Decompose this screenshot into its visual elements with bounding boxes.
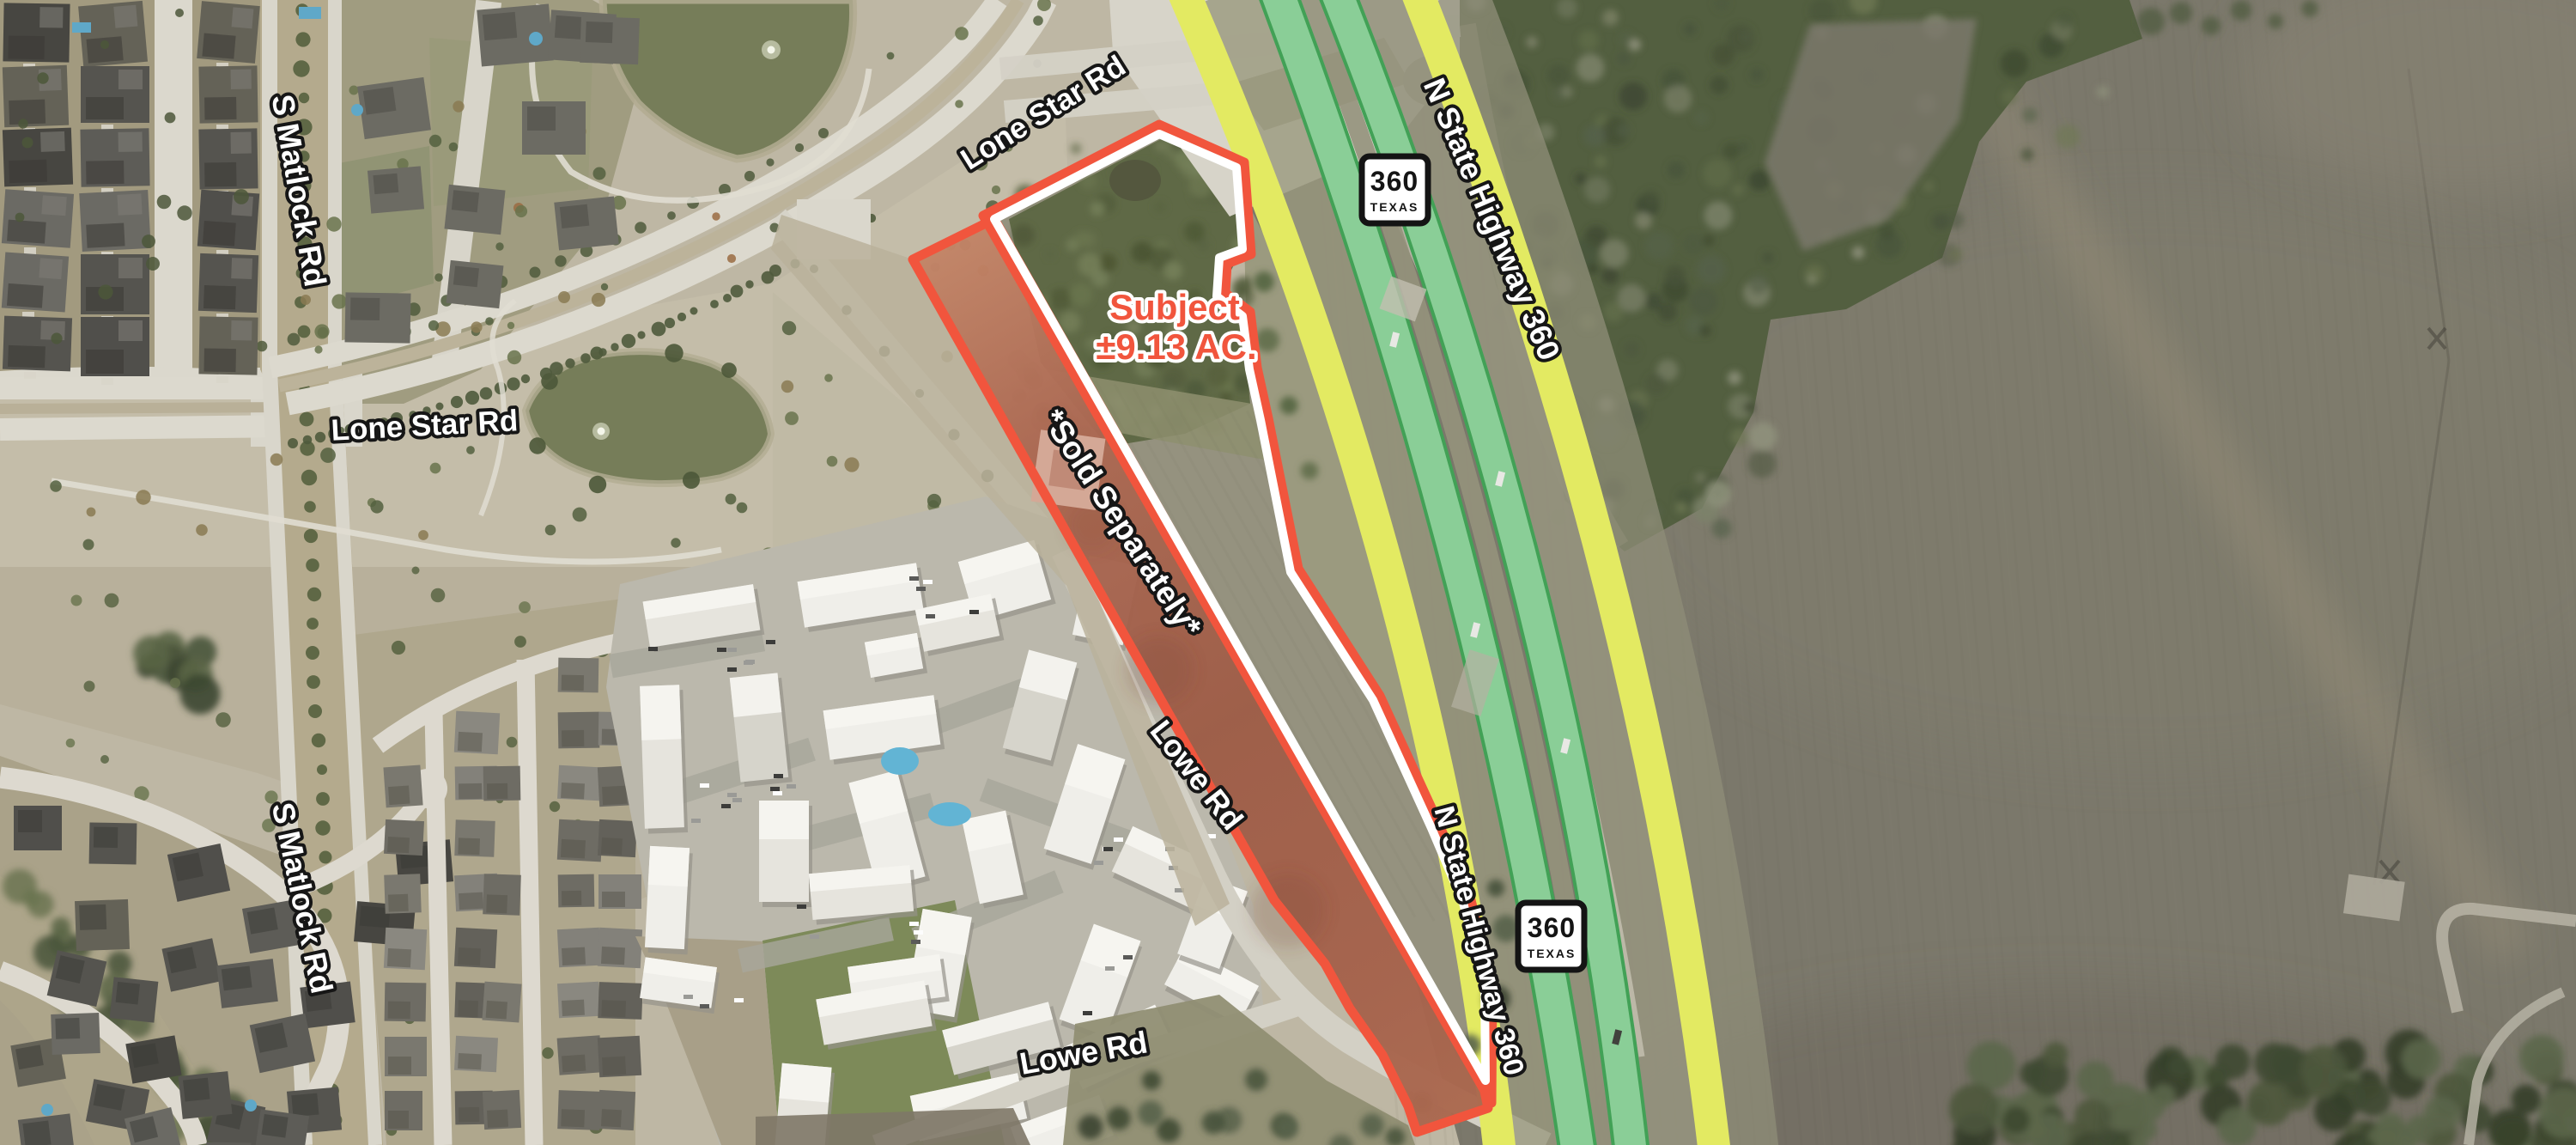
svg-text:±9.13 AC.: ±9.13 AC. [1096, 326, 1256, 367]
svg-text:360: 360 [1528, 912, 1576, 943]
svg-text:TEXAS: TEXAS [1370, 200, 1419, 214]
svg-text:TEXAS: TEXAS [1528, 947, 1577, 960]
svg-text:360: 360 [1370, 166, 1419, 197]
svg-text:Subject: Subject [1109, 287, 1240, 327]
